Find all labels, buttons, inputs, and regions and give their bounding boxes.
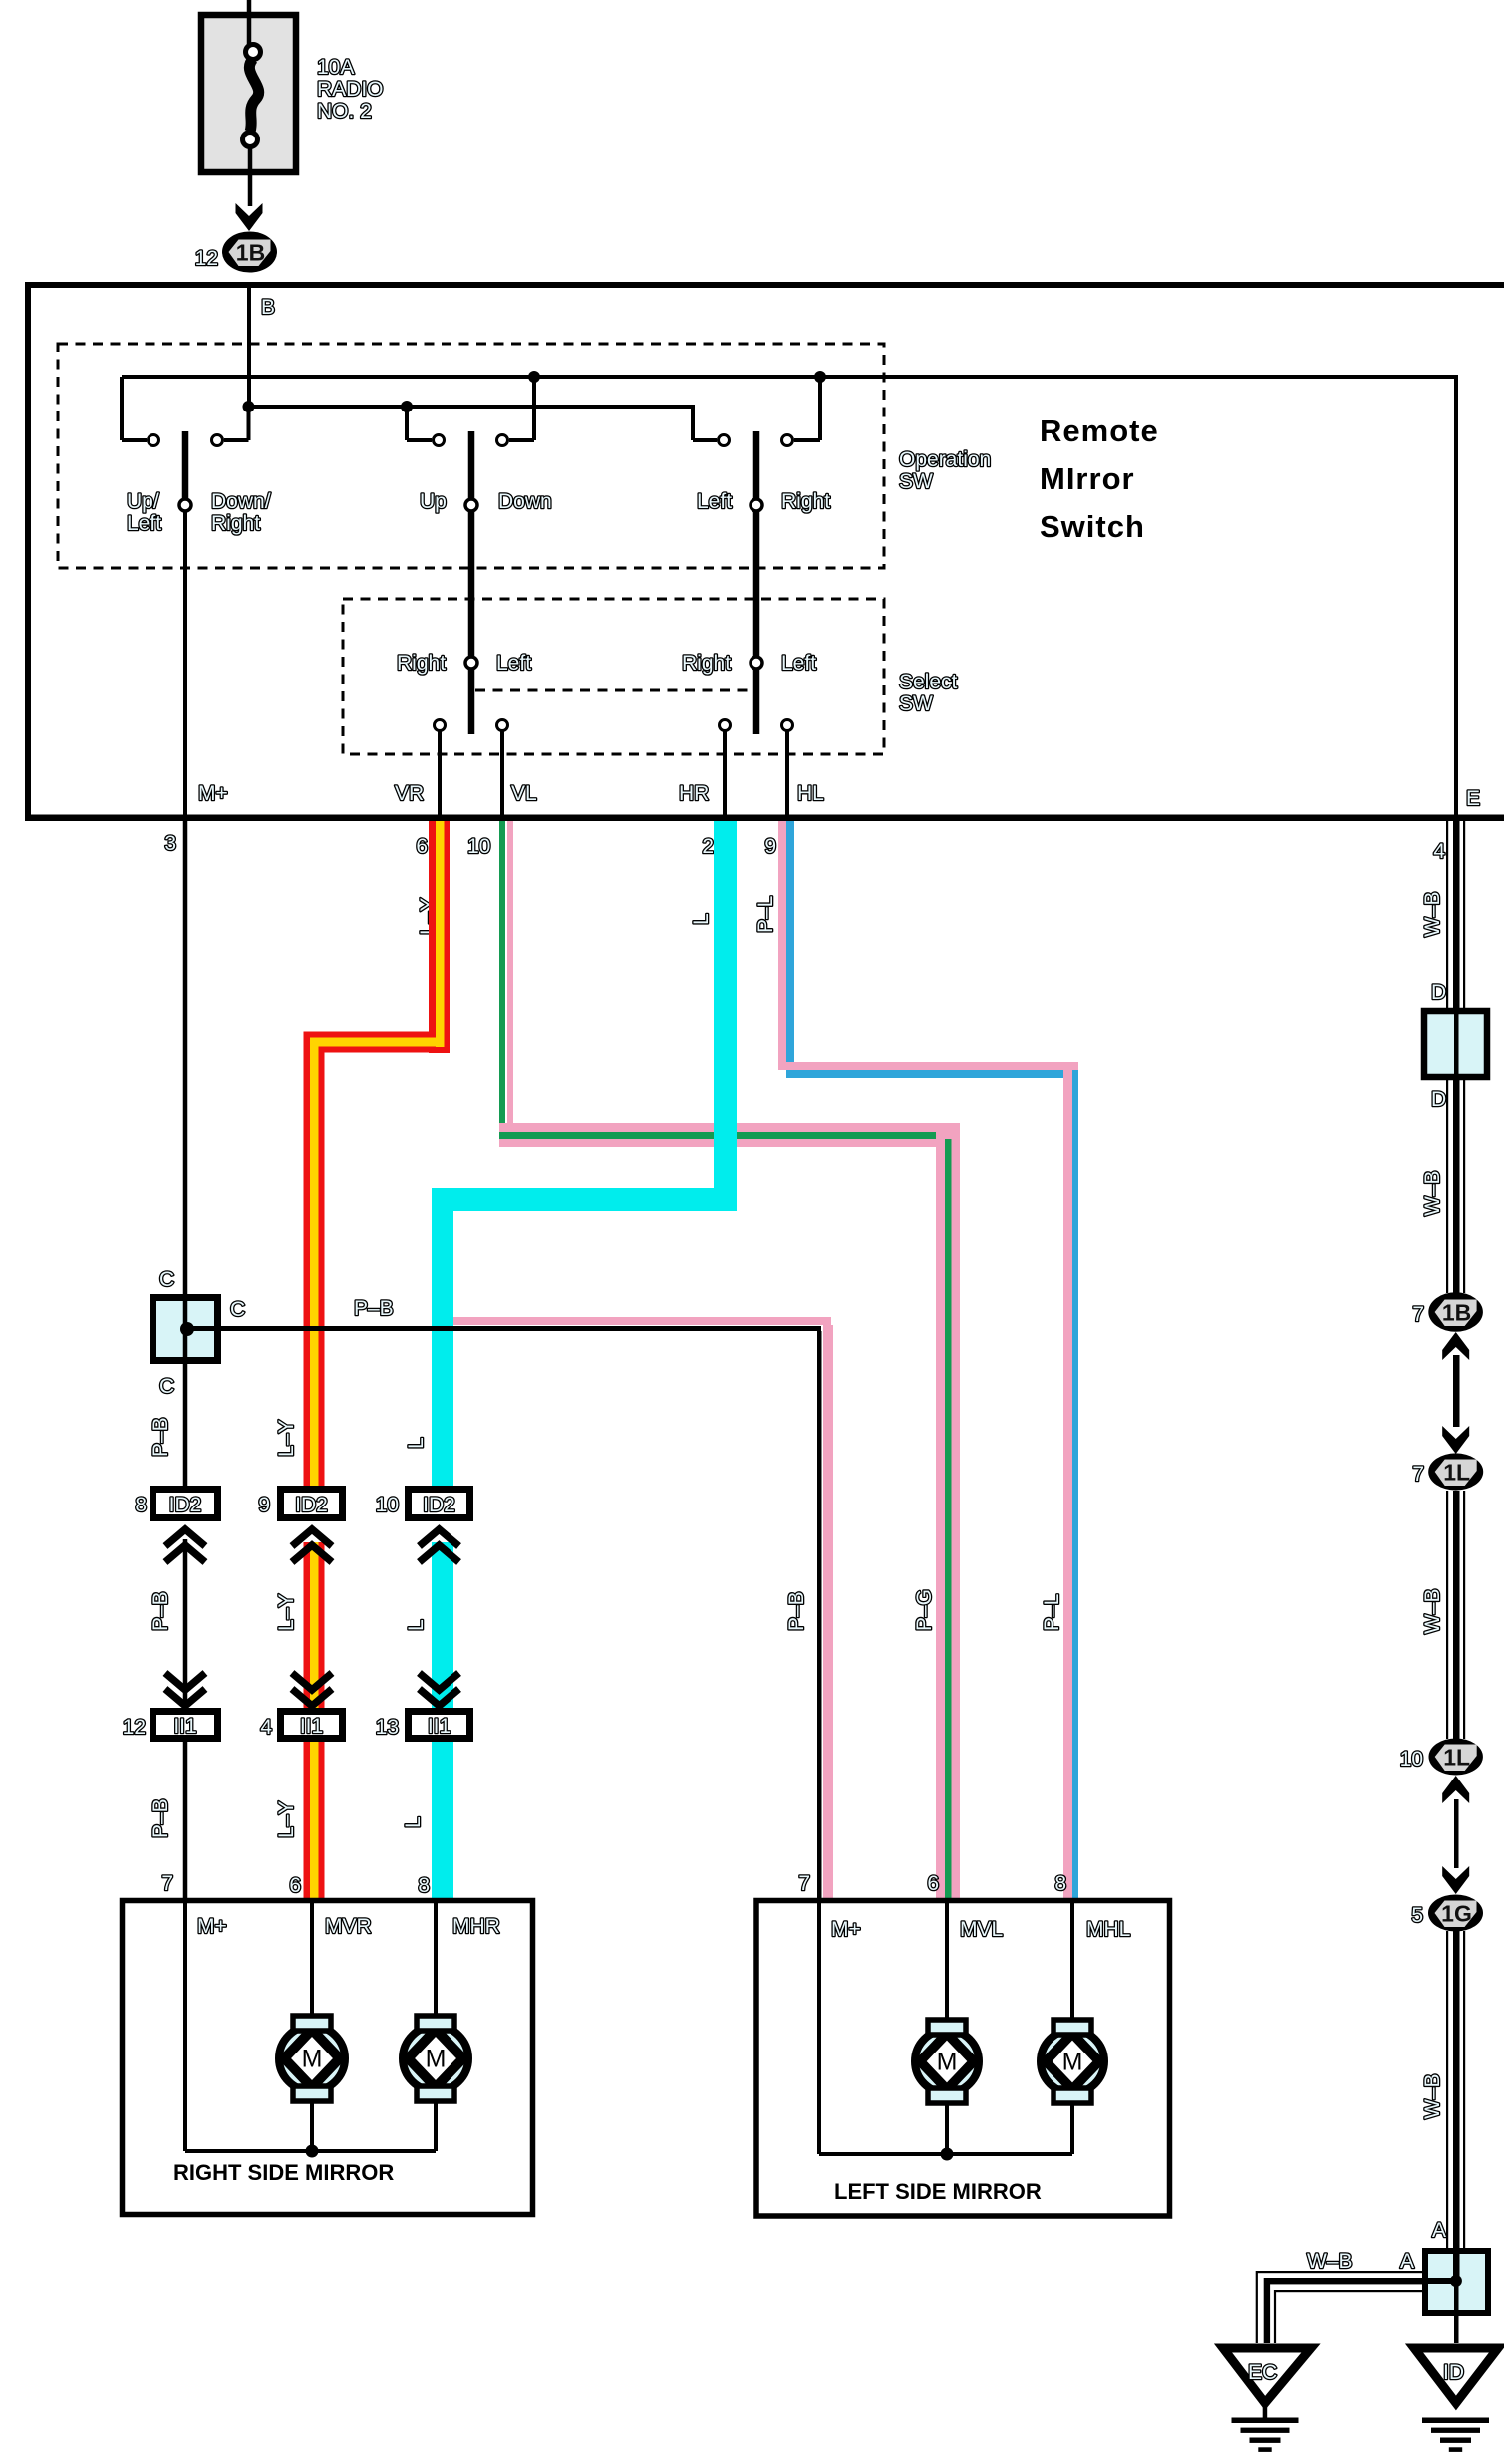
svg-text:P–L: P–L xyxy=(1041,1594,1063,1631)
svg-text:Left: Left xyxy=(127,512,161,535)
svg-text:HR: HR xyxy=(679,782,709,805)
svg-text:Down/: Down/ xyxy=(211,490,271,513)
svg-text:10: 10 xyxy=(467,835,490,858)
svg-text:LEFT SIDE MIRROR: LEFT SIDE MIRROR xyxy=(834,2179,1042,2204)
svg-text:12: 12 xyxy=(195,247,218,270)
svg-text:MHR: MHR xyxy=(452,1915,500,1938)
svg-text:A: A xyxy=(1400,2250,1414,2273)
svg-text:P–B: P–B xyxy=(354,1297,394,1320)
svg-text:L: L xyxy=(405,1619,428,1631)
svg-text:VR: VR xyxy=(395,782,424,805)
svg-text:P–G: P–G xyxy=(913,1589,936,1631)
svg-text:Up/: Up/ xyxy=(127,490,159,513)
svg-text:D: D xyxy=(1431,981,1446,1004)
svg-text:SW: SW xyxy=(899,470,933,493)
svg-text:W–B: W–B xyxy=(1421,891,1444,937)
svg-text:ID2: ID2 xyxy=(169,1494,202,1516)
svg-text:Switch: Switch xyxy=(1040,509,1145,544)
svg-text:M: M xyxy=(1062,2049,1083,2076)
svg-text:L–Y: L–Y xyxy=(275,1594,298,1631)
svg-text:C: C xyxy=(230,1298,245,1321)
svg-text:Up: Up xyxy=(420,490,447,513)
svg-text:RIGHT SIDE MIRROR: RIGHT SIDE MIRROR xyxy=(173,2160,394,2185)
svg-text:1B: 1B xyxy=(236,240,265,266)
svg-text:II1: II1 xyxy=(173,1715,196,1738)
svg-text:D: D xyxy=(1431,1088,1446,1111)
svg-text:4: 4 xyxy=(1433,840,1445,863)
svg-text:A: A xyxy=(1432,2219,1446,2242)
svg-text:B: B xyxy=(261,296,275,319)
svg-text:9: 9 xyxy=(764,835,776,858)
svg-text:W–B: W–B xyxy=(1307,2250,1353,2273)
svg-text:P–B: P–B xyxy=(150,1591,172,1631)
svg-text:RADIO: RADIO xyxy=(317,78,384,101)
svg-text:1G: 1G xyxy=(1441,1901,1472,1927)
svg-text:W–B: W–B xyxy=(1421,1170,1444,1216)
svg-text:HL: HL xyxy=(797,782,824,805)
svg-text:9: 9 xyxy=(258,1494,270,1516)
svg-text:1L: 1L xyxy=(1443,1460,1470,1486)
svg-text:Left: Left xyxy=(781,652,816,675)
svg-text:10: 10 xyxy=(1400,1748,1423,1771)
svg-text:Remote: Remote xyxy=(1040,413,1159,448)
svg-text:MHL: MHL xyxy=(1086,1918,1130,1941)
svg-text:6: 6 xyxy=(416,835,428,858)
svg-text:Right: Right xyxy=(397,652,446,675)
svg-text:SW: SW xyxy=(899,692,933,715)
svg-text:8: 8 xyxy=(135,1494,147,1516)
svg-text:7: 7 xyxy=(1412,1303,1424,1326)
svg-text:Operation: Operation xyxy=(899,448,991,471)
svg-text:L: L xyxy=(405,1437,428,1449)
svg-text:E: E xyxy=(1466,787,1480,810)
svg-text:Left: Left xyxy=(697,490,732,513)
svg-text:MVL: MVL xyxy=(960,1918,1003,1941)
svg-text:13: 13 xyxy=(376,1716,399,1739)
svg-text:P–B: P–B xyxy=(785,1591,808,1631)
svg-text:L–Y: L–Y xyxy=(275,1420,298,1457)
svg-text:ID: ID xyxy=(1443,2361,1464,2384)
svg-text:8: 8 xyxy=(418,1874,430,1897)
svg-text:MIrror: MIrror xyxy=(1040,461,1135,496)
svg-text:II1: II1 xyxy=(428,1715,451,1738)
svg-text:Down: Down xyxy=(498,490,552,513)
svg-text:8: 8 xyxy=(1054,1872,1066,1895)
svg-text:6: 6 xyxy=(289,1874,301,1897)
svg-text:P–B: P–B xyxy=(150,1798,172,1838)
svg-text:M+: M+ xyxy=(197,1915,227,1938)
svg-text:12: 12 xyxy=(123,1716,146,1739)
svg-text:1B: 1B xyxy=(1442,1300,1471,1326)
svg-text:Right: Right xyxy=(781,490,830,513)
svg-text:C: C xyxy=(159,1375,174,1398)
svg-text:L–Y: L–Y xyxy=(275,1801,298,1838)
svg-text:W–B: W–B xyxy=(1421,1588,1444,1634)
svg-text:M+: M+ xyxy=(831,1918,861,1941)
svg-text:M: M xyxy=(937,2049,958,2076)
svg-text:10A: 10A xyxy=(317,56,354,79)
svg-text:3: 3 xyxy=(164,832,176,855)
svg-text:7: 7 xyxy=(798,1872,810,1895)
svg-text:Right: Right xyxy=(211,512,260,535)
svg-text:4: 4 xyxy=(260,1716,272,1739)
svg-text:Select: Select xyxy=(899,671,958,693)
svg-text:M+: M+ xyxy=(198,782,228,805)
svg-text:6: 6 xyxy=(927,1872,939,1895)
svg-text:7: 7 xyxy=(161,1872,173,1895)
svg-text:2: 2 xyxy=(702,835,714,858)
svg-text:ID2: ID2 xyxy=(295,1494,328,1516)
svg-text:10: 10 xyxy=(376,1494,399,1516)
svg-text:W–B: W–B xyxy=(1421,2073,1444,2119)
svg-text:M: M xyxy=(302,2046,323,2073)
svg-text:L: L xyxy=(690,913,713,925)
svg-text:P–L: P–L xyxy=(754,896,777,933)
svg-text:NO. 2: NO. 2 xyxy=(317,100,372,123)
svg-text:VL: VL xyxy=(511,782,537,805)
svg-text:MVR: MVR xyxy=(325,1915,372,1938)
svg-text:EC: EC xyxy=(1248,2361,1277,2384)
svg-text:1L: 1L xyxy=(1443,1745,1470,1771)
svg-text:Left: Left xyxy=(496,652,531,675)
svg-text:L: L xyxy=(402,1816,425,1828)
svg-text:C: C xyxy=(159,1268,174,1291)
svg-text:Right: Right xyxy=(682,652,731,675)
svg-text:ID2: ID2 xyxy=(423,1494,455,1516)
svg-text:7: 7 xyxy=(1412,1463,1424,1486)
svg-text:5: 5 xyxy=(1411,1904,1423,1927)
svg-text:M: M xyxy=(426,2046,447,2073)
svg-text:II1: II1 xyxy=(300,1715,323,1738)
svg-text:P–B: P–B xyxy=(150,1417,172,1457)
